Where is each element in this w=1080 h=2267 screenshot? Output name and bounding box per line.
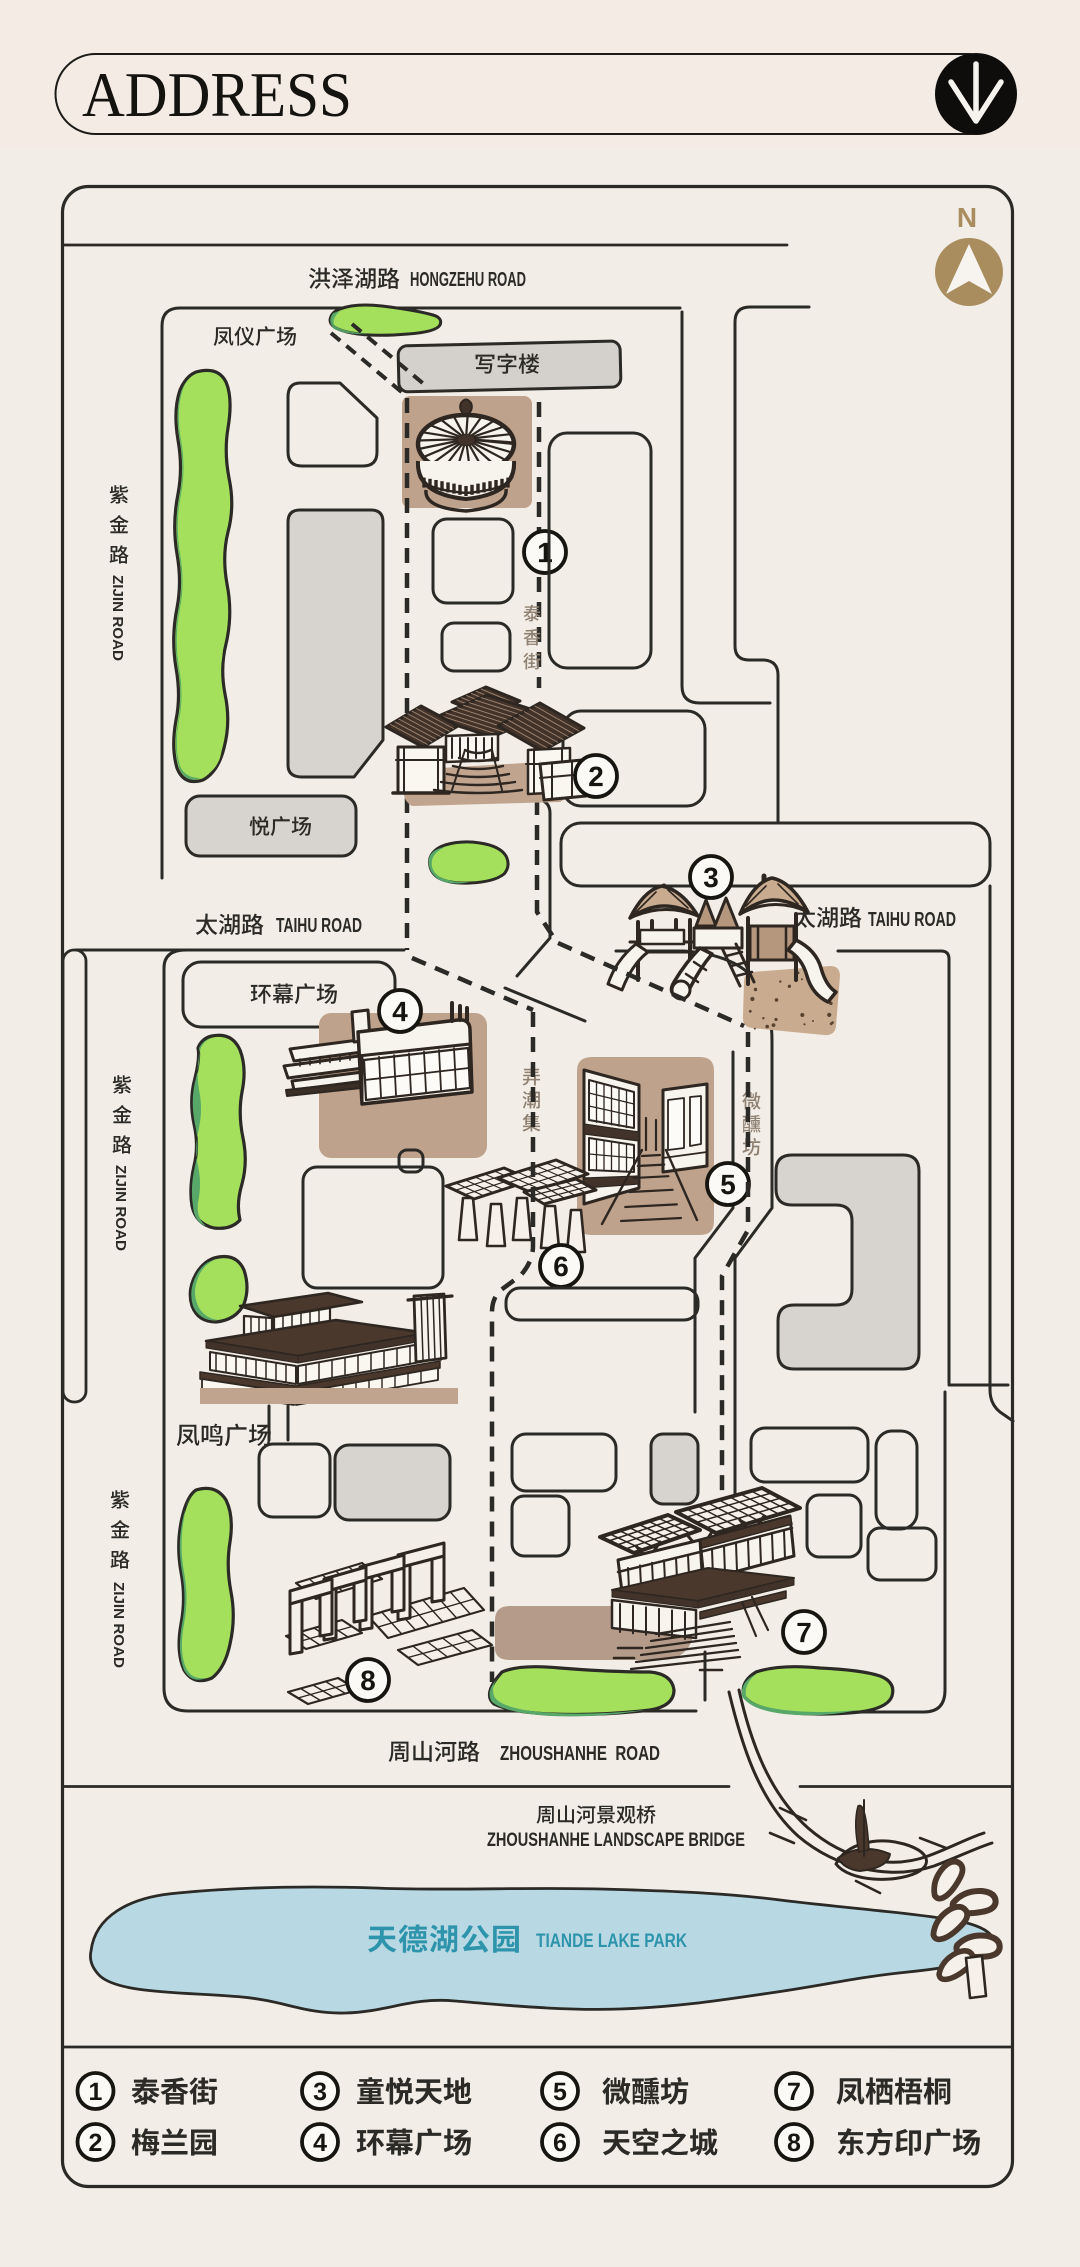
svg-text:ADDRESS: ADDRESS [82, 60, 352, 130]
svg-text:ZIJIN ROAD: ZIJIN ROAD [110, 1582, 127, 1668]
svg-text:ZIJIN ROAD: ZIJIN ROAD [112, 1165, 129, 1251]
svg-text:ZHOUSHANHE LANDSCAPE BRIDGE: ZHOUSHANHE LANDSCAPE BRIDGE [487, 1829, 745, 1851]
svg-text:TAIHU ROAD: TAIHU ROAD [276, 915, 362, 937]
svg-text:N: N [957, 202, 977, 233]
svg-text:ZHOUSHANHE ROAD: ZHOUSHANHE ROAD [500, 1743, 660, 1765]
svg-text:HONGZEHU ROAD: HONGZEHU ROAD [410, 269, 526, 291]
svg-text:TAIHU ROAD: TAIHU ROAD [868, 909, 956, 931]
svg-text:TIANDE LAKE PARK: TIANDE LAKE PARK [536, 1930, 687, 1952]
svg-text:ZIJIN ROAD: ZIJIN ROAD [109, 575, 126, 661]
